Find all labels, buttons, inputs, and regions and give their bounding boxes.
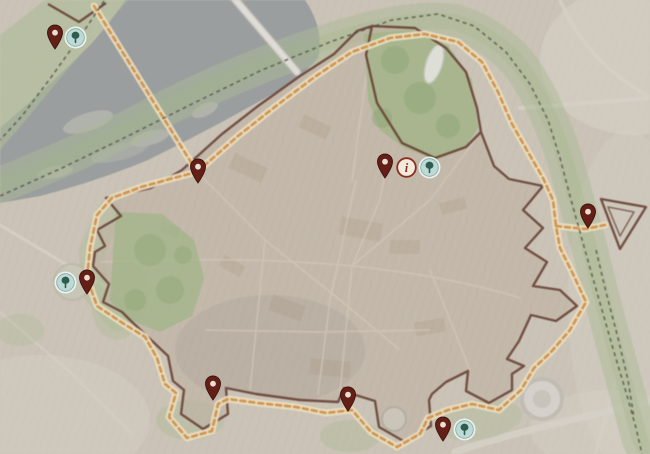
- city-map: i: [0, 0, 650, 454]
- svg-text:i: i: [404, 161, 408, 175]
- marker-layer: i: [0, 0, 650, 454]
